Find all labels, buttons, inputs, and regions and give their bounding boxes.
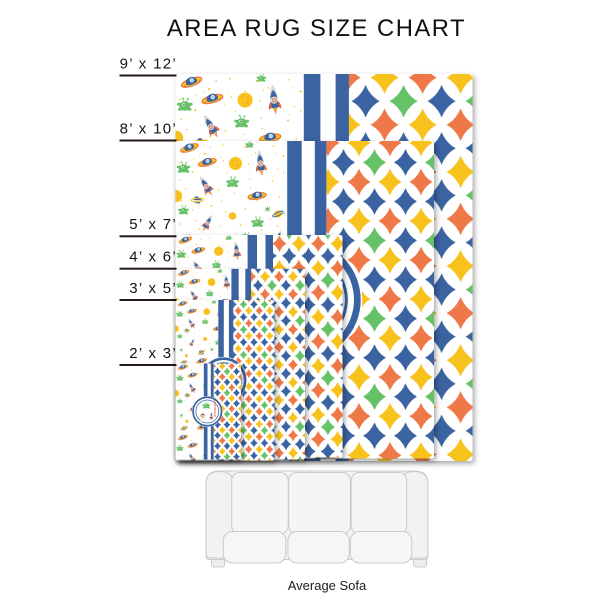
svg-text:3’ x 5’: 3’ x 5’ <box>129 280 177 297</box>
svg-text:9’ x 12’: 9’ x 12’ <box>120 55 177 72</box>
svg-text:Average Sofa: Average Sofa <box>288 578 367 593</box>
svg-text:4’ x 6’: 4’ x 6’ <box>129 249 177 266</box>
svg-text:2’ x 3’: 2’ x 3’ <box>129 345 177 362</box>
svg-text:5’ x 7’: 5’ x 7’ <box>129 216 177 233</box>
svg-text:8’ x 10’: 8’ x 10’ <box>120 120 177 137</box>
svg-text:AREA RUG SIZE CHART: AREA RUG SIZE CHART <box>167 15 466 42</box>
